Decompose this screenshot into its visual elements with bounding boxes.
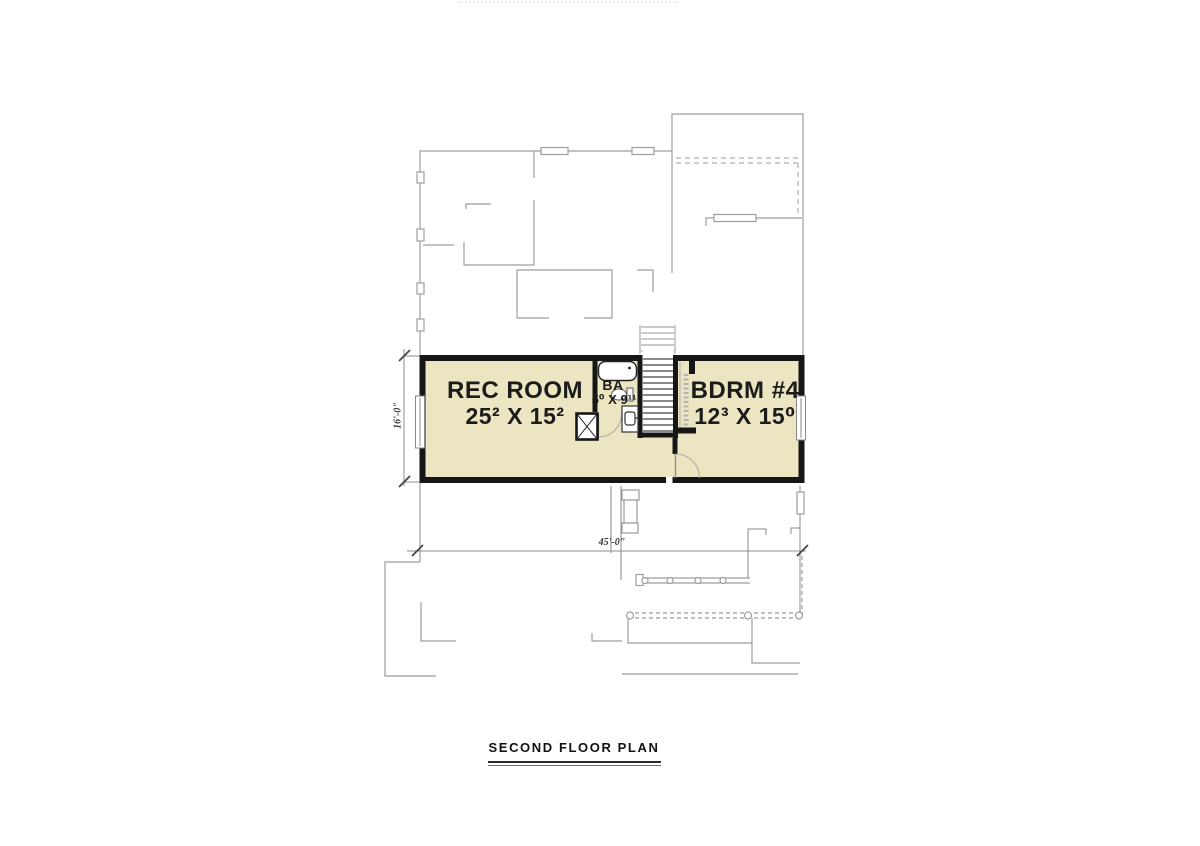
bath-size: 5⁰ X 9¹¹ <box>586 393 642 407</box>
sink-vanity <box>622 406 638 432</box>
width-dimension-label: 45'-0" <box>585 537 639 548</box>
closet-wall-bottom <box>673 428 696 434</box>
rec-room-label: REC ROOM <box>425 379 605 403</box>
bedroom-wall <box>673 438 678 454</box>
bedroom4-size: 12³ X 15⁰ <box>655 404 835 428</box>
tub-drain <box>628 367 631 370</box>
closet-wall-stub <box>689 361 695 374</box>
stair-opening-notch <box>666 477 673 484</box>
window-left <box>416 396 425 448</box>
deck-railing <box>636 575 750 586</box>
plan-title-underline <box>488 761 661 766</box>
bedroom4-label: BDRM #4 <box>655 379 835 403</box>
bath-label: BA <box>588 378 638 392</box>
floor-plan-page: REC ROOM 25² X 15² BA 5⁰ X 9¹¹ BDRM #4 1… <box>0 0 1200 846</box>
depth-dimension-label: 16'-0" <box>393 398 404 434</box>
fireplace <box>611 486 639 580</box>
cropped-text-artifact <box>458 1 678 3</box>
stair-wall-bottom <box>638 433 679 438</box>
plan-title: SECOND FLOOR PLAN <box>474 740 674 755</box>
rec-room-size: 25² X 15² <box>425 404 605 428</box>
deck-edge <box>627 612 803 619</box>
